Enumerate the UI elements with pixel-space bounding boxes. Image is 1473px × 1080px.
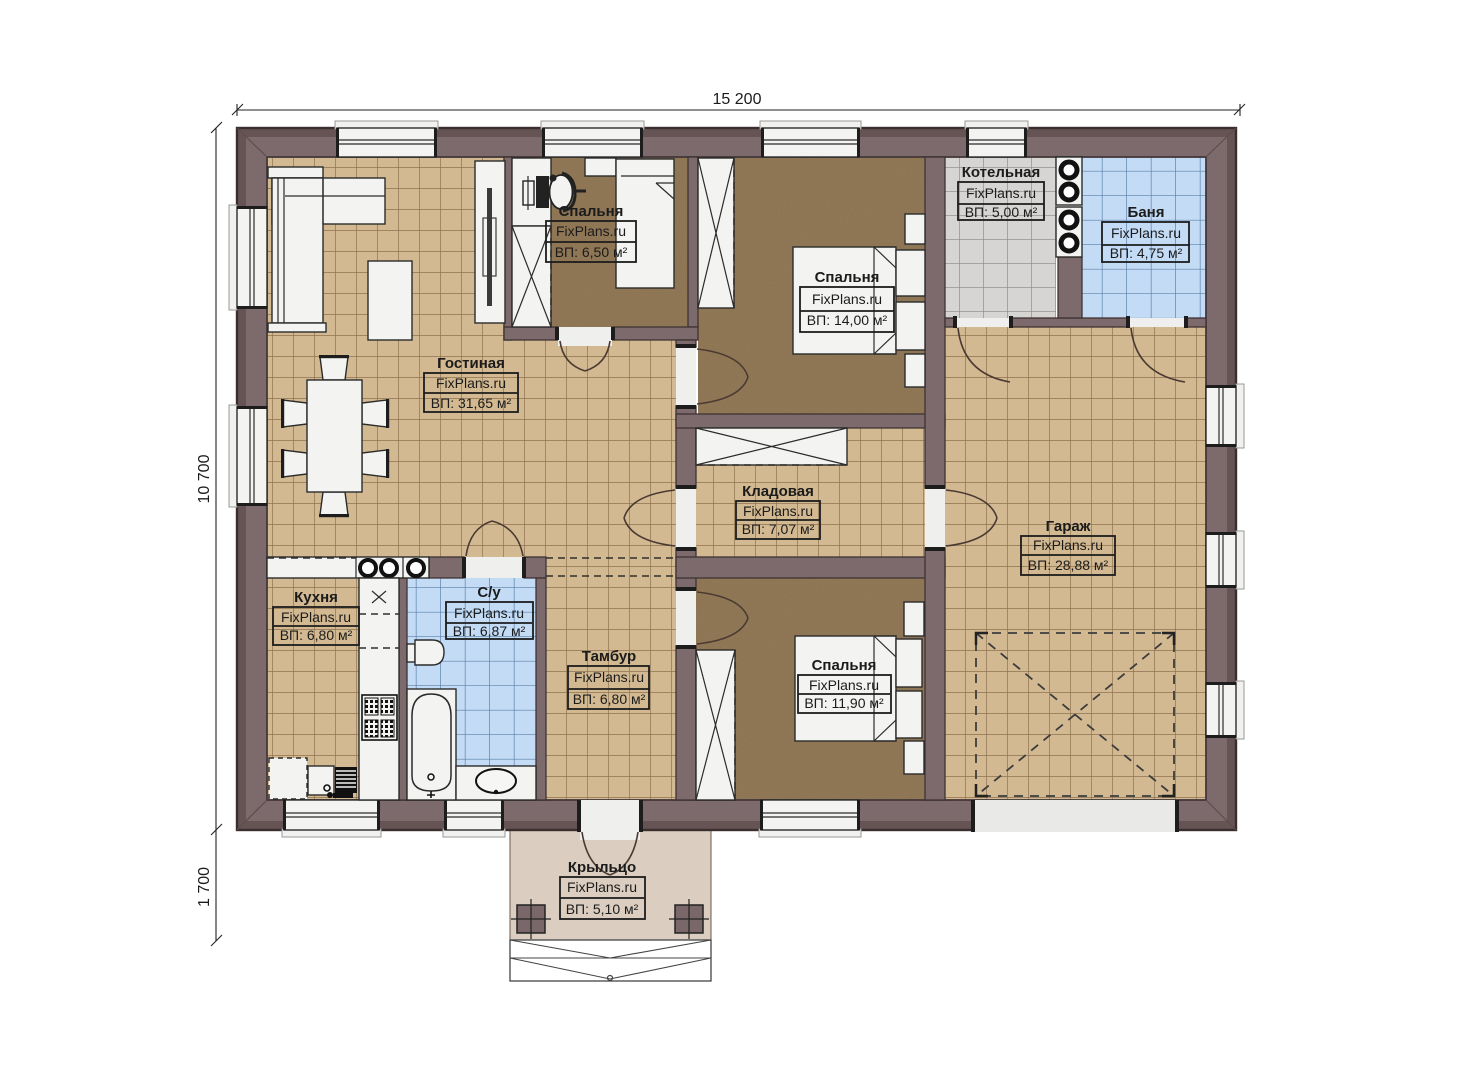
svg-text:С/у: С/у [477,584,501,601]
svg-text:ВП: 11,90 м²: ВП: 11,90 м² [804,695,884,711]
svg-text:Кухня: Кухня [294,589,338,606]
svg-text:ВП: 31,65 м²: ВП: 31,65 м² [431,395,512,411]
svg-text:Крыльцо: Крыльцо [568,859,636,876]
svg-text:FixPlans.ru: FixPlans.ru [436,375,506,391]
svg-text:FixPlans.ru: FixPlans.ru [281,609,351,625]
svg-text:FixPlans.ru: FixPlans.ru [454,605,524,621]
svg-text:FixPlans.ru: FixPlans.ru [966,185,1036,201]
svg-text:Баня: Баня [1128,204,1165,221]
svg-text:ВП: 6,87 м²: ВП: 6,87 м² [453,623,526,639]
svg-text:ВП: 5,00 м²: ВП: 5,00 м² [965,204,1038,220]
svg-text:Гостиная: Гостиная [437,355,505,372]
svg-text:FixPlans.ru: FixPlans.ru [1111,225,1181,241]
svg-text:Кладовая: Кладовая [742,483,814,500]
svg-text:Спальня: Спальня [815,269,880,286]
svg-text:ВП: 6,80 м²: ВП: 6,80 м² [573,691,646,707]
svg-text:FixPlans.ru: FixPlans.ru [812,291,882,307]
svg-text:FixPlans.ru: FixPlans.ru [574,669,644,685]
svg-text:ВП: 7,07 м²: ВП: 7,07 м² [742,521,815,537]
svg-text:Котельная: Котельная [962,164,1041,181]
svg-text:ВП: 6,80 м²: ВП: 6,80 м² [280,627,353,643]
svg-text:Гараж: Гараж [1046,518,1091,535]
svg-text:ВП: 5,10 м²: ВП: 5,10 м² [566,901,639,917]
svg-text:ВП: 6,50 м²: ВП: 6,50 м² [555,244,628,260]
svg-text:FixPlans.ru: FixPlans.ru [743,503,813,519]
svg-text:FixPlans.ru: FixPlans.ru [809,677,879,693]
svg-text:15 200: 15 200 [713,91,762,108]
svg-text:ВП: 14,00 м²: ВП: 14,00 м² [807,312,888,328]
svg-text:FixPlans.ru: FixPlans.ru [1033,537,1103,553]
svg-text:FixPlans.ru: FixPlans.ru [567,879,637,895]
svg-text:Спальня: Спальня [559,203,624,220]
svg-text:ВП: 28,88 м²: ВП: 28,88 м² [1028,557,1109,573]
svg-text:Тамбур: Тамбур [582,648,636,665]
svg-text:10 700: 10 700 [196,454,213,503]
svg-text:ВП: 4,75 м²: ВП: 4,75 м² [1110,245,1183,261]
svg-text:Спальня: Спальня [812,657,877,674]
svg-text:FixPlans.ru: FixPlans.ru [556,223,626,239]
svg-text:1 700: 1 700 [196,867,213,907]
